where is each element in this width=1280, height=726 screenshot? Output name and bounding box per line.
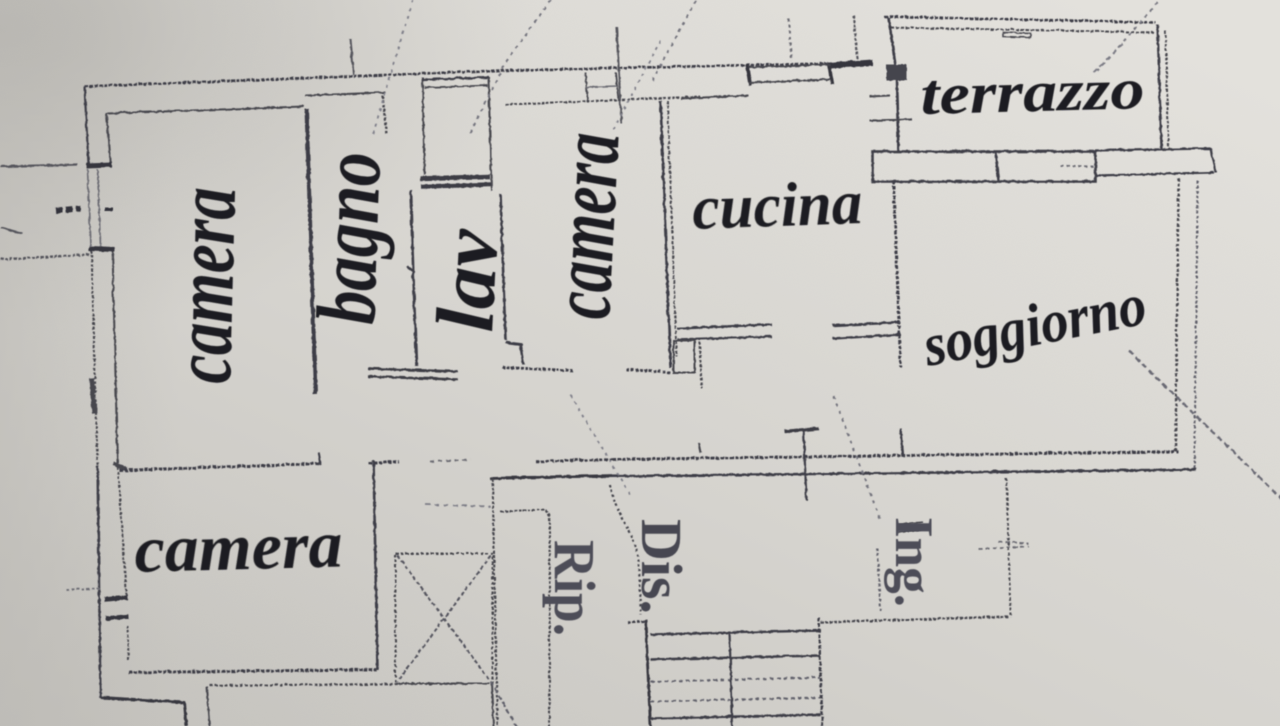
svg-text:terrazzo: terrazzo [920, 56, 1146, 127]
svg-text:Rip.: Rip. [542, 540, 607, 636]
svg-text:bagno: bagno [300, 151, 399, 326]
svg-text:camera: camera [156, 186, 254, 384]
svg-text:cucina: cucina [691, 169, 863, 243]
svg-text:lav: lav [419, 226, 515, 334]
svg-text:Dis.: Dis. [629, 519, 694, 614]
svg-text:camera: camera [532, 130, 638, 321]
svg-text:Ing.: Ing. [884, 517, 944, 607]
svg-text:camera: camera [133, 508, 343, 587]
